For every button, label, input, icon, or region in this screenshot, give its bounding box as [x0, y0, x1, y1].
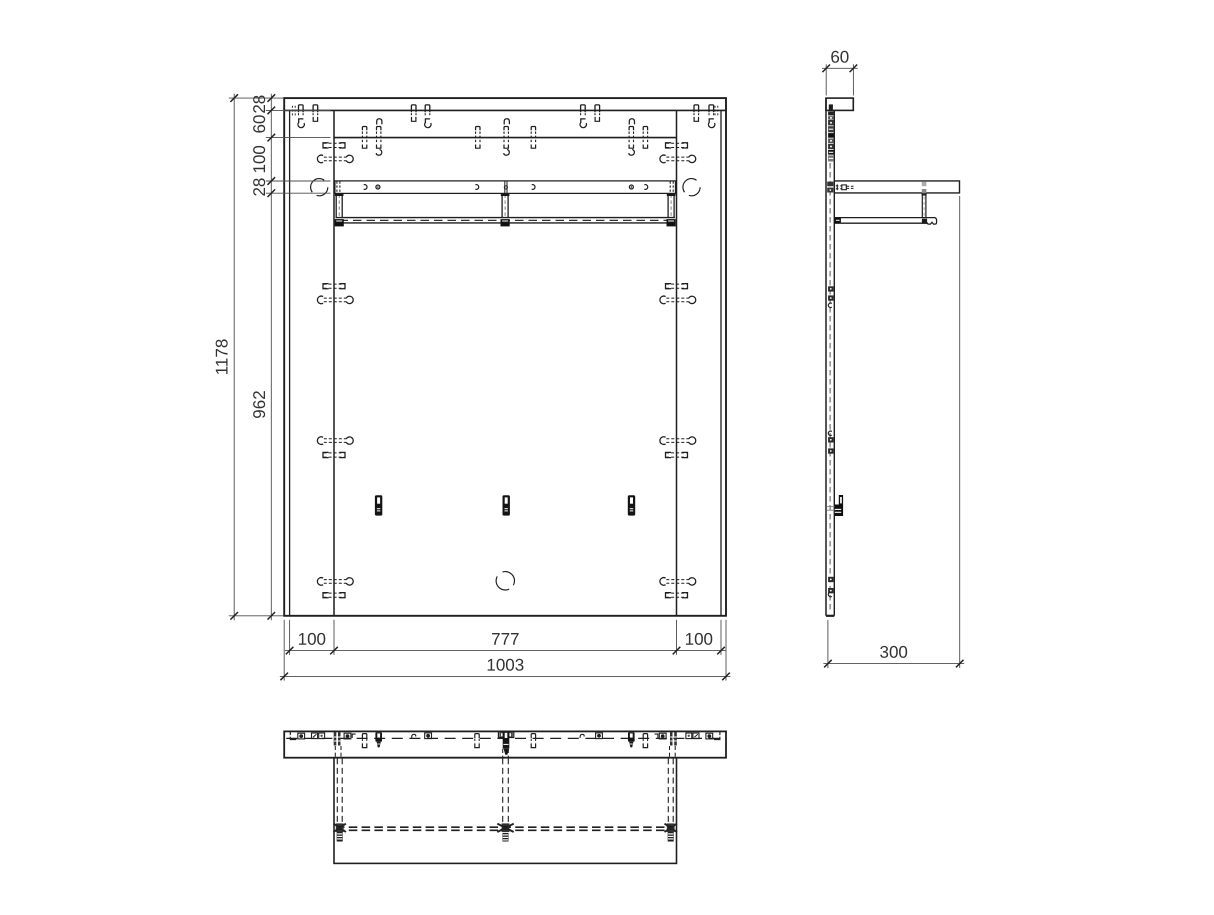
svg-text:1178: 1178 [213, 339, 232, 376]
svg-text:60: 60 [250, 115, 269, 134]
svg-text:300: 300 [880, 643, 908, 662]
svg-text:100: 100 [298, 630, 326, 649]
svg-text:100: 100 [685, 630, 713, 649]
svg-text:777: 777 [491, 630, 519, 649]
svg-text:28: 28 [250, 178, 269, 197]
svg-text:962: 962 [250, 390, 269, 418]
svg-text:60: 60 [830, 48, 849, 67]
svg-text:28: 28 [250, 95, 269, 114]
svg-text:1003: 1003 [486, 656, 524, 675]
svg-text:100: 100 [250, 145, 269, 173]
